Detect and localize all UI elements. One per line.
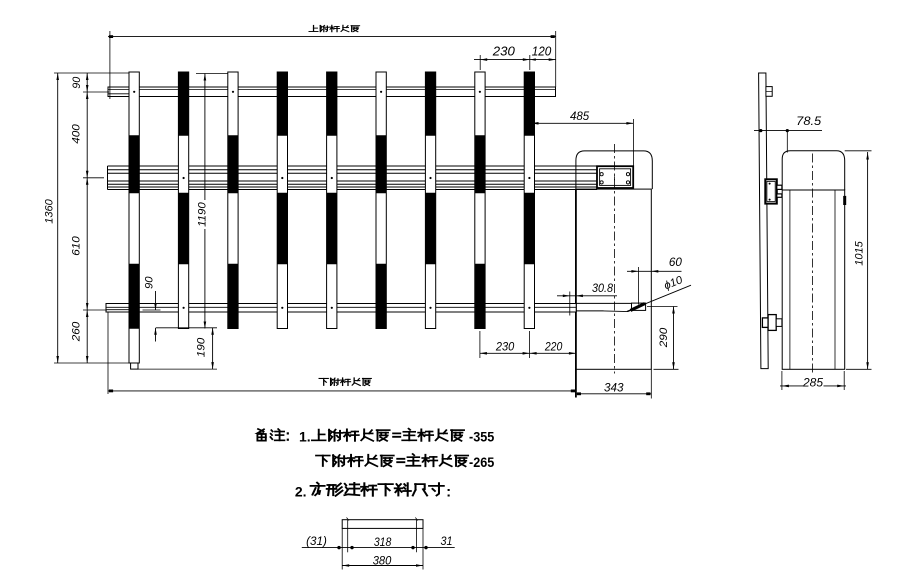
svg-text:230: 230: [492, 44, 515, 58]
svg-text:120: 120: [532, 44, 552, 58]
svg-text::: :: [446, 483, 451, 500]
svg-text:60: 60: [669, 255, 682, 269]
svg-text:380: 380: [373, 553, 392, 567]
svg-text:343: 343: [604, 381, 624, 395]
svg-text:90: 90: [143, 276, 155, 289]
svg-text:1015: 1015: [853, 240, 865, 265]
svg-text:-265: -265: [469, 455, 495, 470]
svg-text:1360: 1360: [43, 198, 55, 223]
svg-text:-355: -355: [469, 429, 495, 444]
svg-text:285: 285: [802, 376, 823, 390]
svg-text:610: 610: [70, 235, 82, 255]
svg-text:1190: 1190: [196, 201, 208, 226]
svg-text:2.: 2.: [295, 483, 307, 499]
svg-text:90: 90: [71, 76, 83, 89]
svg-text:(31): (31): [306, 534, 327, 548]
svg-text:318: 318: [374, 535, 392, 549]
svg-text:78.5: 78.5: [796, 114, 821, 128]
svg-text:190: 190: [196, 337, 208, 357]
svg-text:290: 290: [658, 327, 670, 348]
svg-text:1.: 1.: [299, 428, 311, 444]
svg-text:220: 220: [544, 339, 563, 353]
svg-text:30.8: 30.8: [592, 283, 614, 295]
svg-text:485: 485: [570, 109, 590, 123]
svg-text:230: 230: [495, 339, 515, 353]
svg-text:31: 31: [441, 534, 453, 548]
svg-text:400: 400: [70, 123, 82, 143]
svg-text:260: 260: [70, 321, 82, 342]
